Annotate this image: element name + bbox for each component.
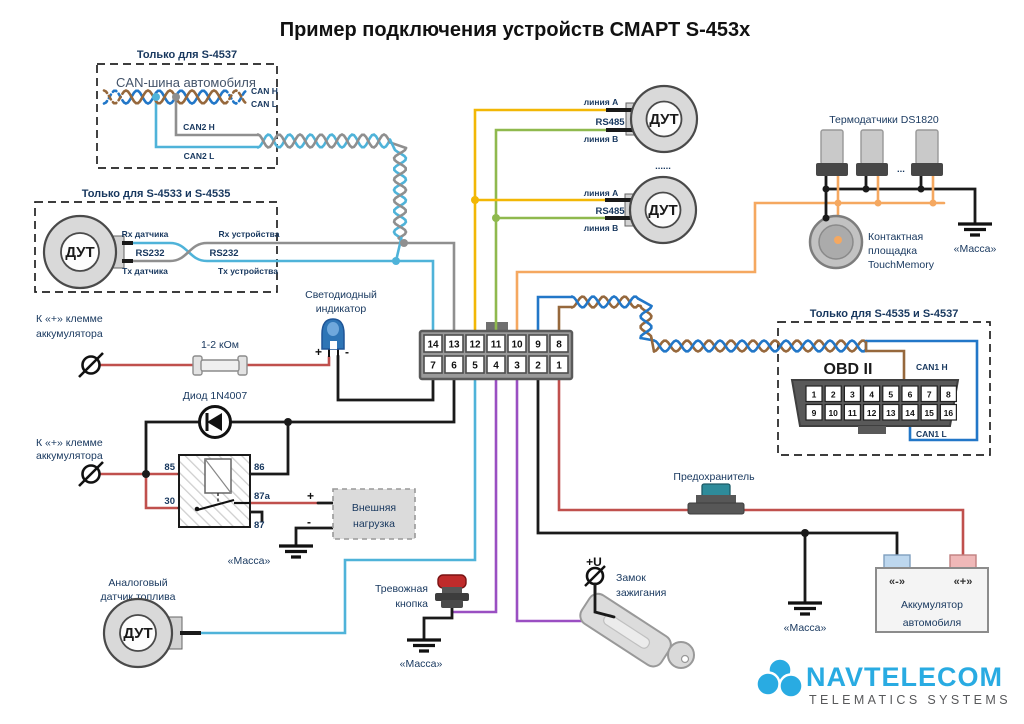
ignition-label-1: Замок (616, 572, 646, 584)
load-box (333, 489, 415, 539)
key-ring (668, 642, 694, 668)
twisted-pair-strand (641, 306, 652, 338)
relay-pivot (195, 507, 200, 512)
main-connector-pin-number: 12 (469, 340, 481, 351)
junction-dot (471, 196, 479, 204)
ground-symbol-thermo (958, 224, 992, 235)
junction-dot (284, 418, 292, 426)
pad-label-1: Контактная (868, 231, 923, 243)
main-connector-pin-number: 4 (493, 361, 499, 372)
batt-top-label-2: аккумулятора (36, 328, 103, 340)
can-box-title: Только для S-4537 (137, 49, 237, 61)
main-connector-pin-number: 2 (535, 361, 541, 372)
junction-dot (492, 214, 500, 222)
can-bus-heading: CAN-шина автомобиля (116, 75, 256, 90)
obd-pin-number: 14 (905, 408, 915, 418)
rs232-box-title: Только для S-4533 и S-4535 (82, 188, 231, 200)
obd-pin-number: 2 (831, 390, 836, 400)
led-notch (330, 341, 337, 349)
relay-pin-30: 30 (164, 496, 175, 507)
main-connector: 1413121110987654321 (420, 331, 572, 379)
twist-join (390, 140, 394, 148)
led-plus: + (315, 345, 322, 359)
tx-sensor-label: Tx датчика (122, 266, 168, 276)
rs232-left-label: RS232 (135, 248, 164, 259)
obd-pin-number: 10 (828, 408, 838, 418)
ground-symbol-load (279, 546, 313, 557)
obd-pin-number: 12 (867, 408, 877, 418)
pad-label-2: площадка (868, 245, 917, 257)
sensor-name: ДУТ (65, 244, 94, 261)
batt-bottom-label-1: К «+» клемме (36, 437, 103, 449)
battery-plus-label: «+» (954, 576, 973, 588)
main-connector-pin-number: 8 (556, 340, 562, 351)
junction-dot (400, 239, 408, 247)
terminal-symbol-top (79, 353, 103, 377)
rs232-fuel-sensor: ДУТ (44, 216, 133, 288)
external-load (333, 489, 415, 539)
button-base (441, 600, 463, 608)
obd-pin-number: 13 (886, 408, 896, 418)
fuse-label: Предохранитель (673, 471, 755, 483)
main-connector-pin-number: 5 (472, 361, 478, 372)
logo-tagline: TELEMATICS SYSTEMS (809, 693, 1011, 707)
thermo-sensors (816, 130, 943, 176)
junction-dot (835, 200, 842, 207)
thermo-sensor-body (821, 130, 843, 164)
sensor-name: ДУТ (649, 111, 678, 128)
thermo-sensor-base (856, 163, 888, 176)
obd-connector: 12345678910111213141516 (792, 380, 958, 434)
led-label-1: Светодиодный (305, 289, 377, 301)
thermo-sensor-body (916, 130, 938, 164)
relay-pin-87a: 87a (254, 491, 271, 502)
ground-symbol-alarm (407, 640, 441, 651)
logo-circle-3 (780, 675, 803, 698)
obd-pin-number: 1 (812, 390, 817, 400)
relay-pin-86: 86 (254, 462, 265, 473)
led-minus: - (345, 345, 349, 359)
rs485-1-label: RS485 (595, 117, 625, 128)
button-cap (438, 575, 466, 588)
relay-pin-85: 85 (164, 462, 175, 473)
analog-sensor-label-1: Аналоговый (108, 577, 167, 589)
obd-pin-number: 5 (888, 390, 893, 400)
resistor-body (201, 360, 239, 371)
led-label-2: индикатор (316, 303, 367, 315)
junction-dot (863, 186, 870, 193)
obd-pin-number: 8 (946, 390, 951, 400)
main-connector-pin-number: 13 (448, 340, 460, 351)
page-title: Пример подключения устройств СМАРТ S-453… (280, 19, 751, 41)
main-connector-pin-number: 7 (430, 361, 436, 372)
junction-dot (918, 186, 925, 193)
rs232-right-label: RS232 (209, 248, 238, 259)
battery-minus-terminal (884, 555, 910, 568)
wire-alarm-ground (424, 606, 452, 640)
junction-dot (823, 215, 830, 222)
ground-symbol-battery (788, 603, 822, 614)
obd-shell-tab (858, 426, 886, 434)
diagram-canvas: Пример подключения устройств СМАРТ S-453… (0, 0, 1024, 724)
obd-pin-number: 11 (848, 408, 857, 418)
main-connector-pin-number: 3 (514, 361, 520, 372)
wire-load-minus (296, 528, 333, 546)
navtelecom-logo: NAVTELECOM TELEMATICS SYSTEMS (757, 659, 1011, 708)
junction-dot (142, 470, 150, 478)
wire-rs232-tx (132, 243, 454, 332)
tx-device-label: Tx устройства (218, 266, 278, 276)
rx-device-label: Rx устройства (219, 229, 280, 239)
wire-pin6-relay86 (250, 378, 454, 474)
alarm-label-1: Тревожная (375, 583, 428, 595)
can2-l-label: CAN2 L (184, 151, 215, 161)
can1-h-label: CAN1 H (916, 362, 948, 372)
twist-join (638, 305, 641, 306)
obd-pin-number: 15 (924, 408, 934, 418)
load-label-1: Внешняя (352, 502, 396, 514)
thermo-sensor-base (911, 163, 943, 176)
button-neck (442, 587, 462, 594)
main-connector-pin-number: 1 (556, 361, 562, 372)
main-connector-pin-number: 6 (451, 361, 457, 372)
logo-name: NAVTELECOM (806, 662, 1003, 692)
obd-pin-number: 6 (908, 390, 913, 400)
batt-bottom-label-2: аккумулятора (36, 450, 103, 462)
led-highlight (327, 322, 339, 336)
diode-label: Диод 1N4007 (183, 390, 248, 402)
wiring-diagram: Пример подключения устройств СМАРТ S-453… (0, 0, 1024, 724)
junction-dot (392, 257, 400, 265)
junction-dot (930, 200, 937, 207)
diode-symbol (200, 407, 231, 438)
alarm-button (435, 575, 469, 608)
battery-label-2: автомобиля (903, 617, 961, 629)
resistor-label: 1-2 кОм (201, 339, 239, 351)
junction-dot (801, 529, 809, 537)
obd-pin-number: 16 (944, 408, 954, 418)
junction-dot (834, 236, 842, 244)
main-connector-pin-number: 11 (491, 340, 502, 351)
line-b1-label: линия B (584, 134, 618, 144)
obd-pin-number: 9 (812, 408, 817, 418)
main-connector-pin-number: 9 (535, 340, 541, 351)
junction-dot (823, 186, 830, 193)
fuse-base (688, 503, 744, 514)
wire-can1h-lead (538, 297, 572, 332)
pad-label-3: TouchMemory (868, 259, 935, 271)
logo-circle-2 (757, 673, 780, 696)
ignition-label-2: зажигания (616, 587, 666, 599)
obd-pin-number: 7 (927, 390, 932, 400)
thermo-sensor-base (816, 163, 848, 176)
rs485-more-dots: ...... (655, 161, 671, 172)
analog-fuel-sensor: ДУТ (104, 599, 201, 667)
line-a2-label: линия A (584, 188, 618, 198)
ground-label-alarm: «Масса» (400, 658, 443, 670)
sensor-name: ДУТ (648, 202, 677, 219)
can-l-label: CAN L (251, 99, 277, 109)
thermo-title: Термодатчики DS1820 (829, 114, 939, 126)
junction-dot (172, 93, 180, 101)
obd-box-title: Только для S-4535 и S-4537 (810, 308, 959, 320)
main-connector-pin-number: 10 (511, 340, 523, 351)
load-label-2: нагрузка (353, 518, 395, 530)
batt-top-label-1: К «+» клемме (36, 313, 103, 325)
key-hole (682, 656, 689, 663)
obd-pin-number: 3 (850, 390, 855, 400)
relay-pin-87: 87 (254, 520, 265, 531)
ground-label-battery: «Масса» (784, 622, 827, 634)
button-collar (435, 593, 469, 601)
junction-dot (875, 200, 882, 207)
battery-label-1: Аккумулятор (901, 599, 963, 611)
thermo-sensor-body (861, 130, 883, 164)
led-indicator (322, 319, 344, 357)
line-b2-label: линия B (584, 223, 618, 233)
resistor (193, 356, 247, 375)
obd-heading: OBD II (824, 361, 873, 378)
line-a1-label: линия A (584, 97, 618, 107)
can1-l-label: CAN1 L (916, 429, 947, 439)
ground-label-load: «Масса» (228, 555, 271, 567)
can-h-label: CAN H (251, 86, 278, 96)
junction-dot (152, 93, 160, 101)
alarm-label-2: кнопка (395, 598, 428, 610)
wire-thermo-ground-bus (826, 176, 975, 224)
terminal-symbol-bottom (79, 462, 103, 486)
thermo-more-dots: ... (897, 164, 905, 175)
battery-plus-terminal (950, 555, 976, 568)
rs485-2-label: RS485 (595, 206, 625, 217)
can2-h-label: CAN2 H (183, 122, 215, 132)
obd-pin-number: 4 (869, 390, 874, 400)
rx-sensor-label: Rx датчика (122, 229, 169, 239)
wire-can1l-lead (559, 307, 572, 332)
load-minus: - (307, 515, 311, 529)
wire-rs232-rx (132, 243, 433, 332)
main-connector-pin-number: 14 (427, 340, 439, 351)
relay (179, 455, 250, 527)
battery-minus-label: «-» (889, 576, 905, 588)
load-plus: + (307, 489, 314, 503)
fuse (688, 484, 744, 514)
sensor-name: ДУТ (123, 625, 152, 642)
logo-clover-icon (757, 659, 803, 698)
ground-label-thermo: «Масса» (954, 243, 997, 255)
